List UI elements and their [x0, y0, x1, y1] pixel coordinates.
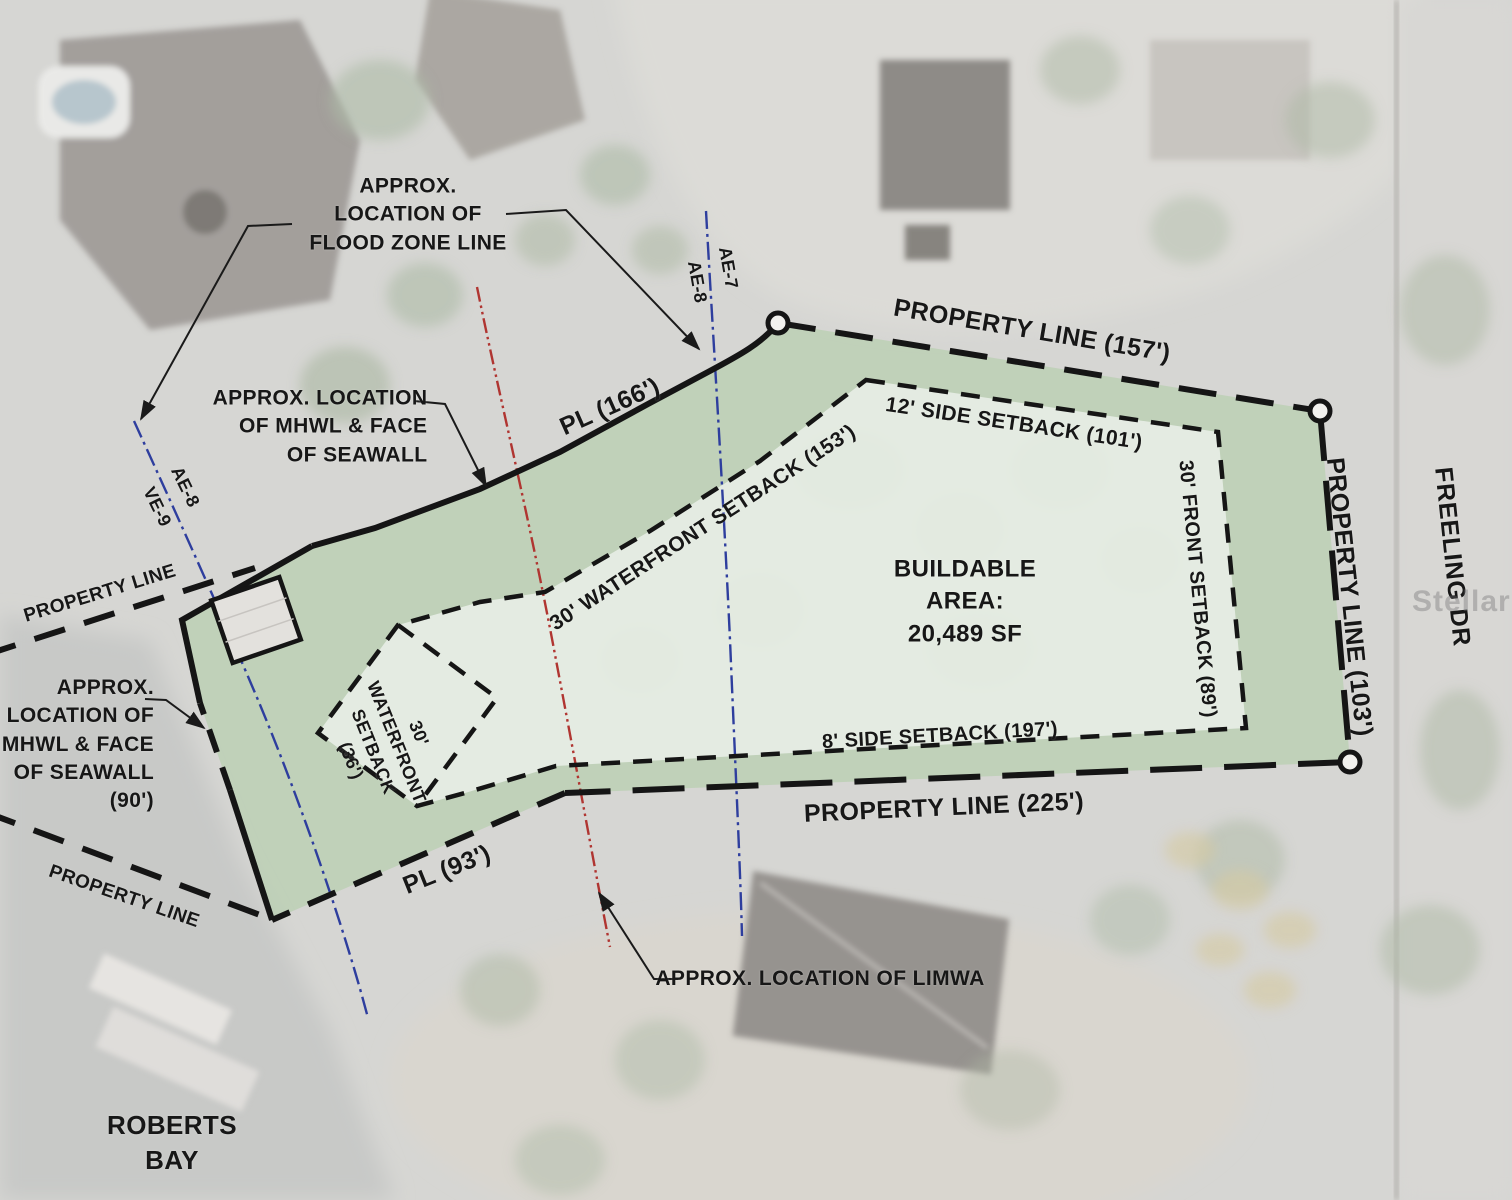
roberts-bay-line1: ROBERTS: [107, 1108, 237, 1143]
label-roberts-bay: ROBERTS BAY: [107, 1108, 237, 1178]
callout-mhwl-south-line2: LOCATION OF: [2, 702, 154, 730]
callout-mhwl-north: APPROX. LOCATION OF MHWL & FACE OF SEAWA…: [213, 384, 428, 469]
callout-mhwl-north-line3: OF SEAWALL: [213, 441, 428, 469]
stellar-mls-watermark: Stellar MLS: [1412, 585, 1512, 619]
corner-marker-southeast: [1340, 752, 1360, 772]
buildable-area-line2: AREA:: [894, 586, 1036, 618]
roberts-bay-line2: BAY: [107, 1143, 237, 1178]
callout-flood-zone: APPROX. LOCATION OF FLOOD ZONE LINE: [309, 172, 506, 257]
road-edge: [1394, 0, 1399, 1200]
site-plan-drawing: [0, 0, 1512, 1200]
callout-flood-zone-line3: FLOOD ZONE LINE: [309, 229, 506, 257]
label-buildable-area: BUILDABLE AREA: 20,489 SF: [894, 553, 1036, 650]
corner-marker-northeast: [1310, 401, 1330, 421]
callout-mhwl-north-line2: OF MHWL & FACE: [213, 413, 428, 441]
callout-mhwl-south-line3: MHWL & FACE: [2, 731, 154, 759]
site-plan-page: { "watermark": "Stellar MLS", "site_plan…: [0, 0, 1512, 1200]
callout-mhwl-north-line1: APPROX. LOCATION: [213, 384, 428, 412]
buildable-area-line3: 20,489 SF: [894, 618, 1036, 650]
buildable-area-line1: BUILDABLE: [894, 553, 1036, 585]
callout-flood-zone-line2: LOCATION OF: [309, 201, 506, 229]
callout-limwa: APPROX. LOCATION OF LIMWA: [655, 967, 984, 991]
callout-mhwl-south: APPROX. LOCATION OF MHWL & FACE OF SEAWA…: [2, 674, 154, 816]
callout-mhwl-south-line4: OF SEAWALL: [2, 759, 154, 787]
corner-marker-north: [768, 313, 788, 333]
callout-mhwl-south-line1: APPROX.: [2, 674, 154, 702]
callout-mhwl-south-line5: (90'): [2, 788, 154, 816]
callout-flood-zone-line1: APPROX.: [309, 172, 506, 200]
